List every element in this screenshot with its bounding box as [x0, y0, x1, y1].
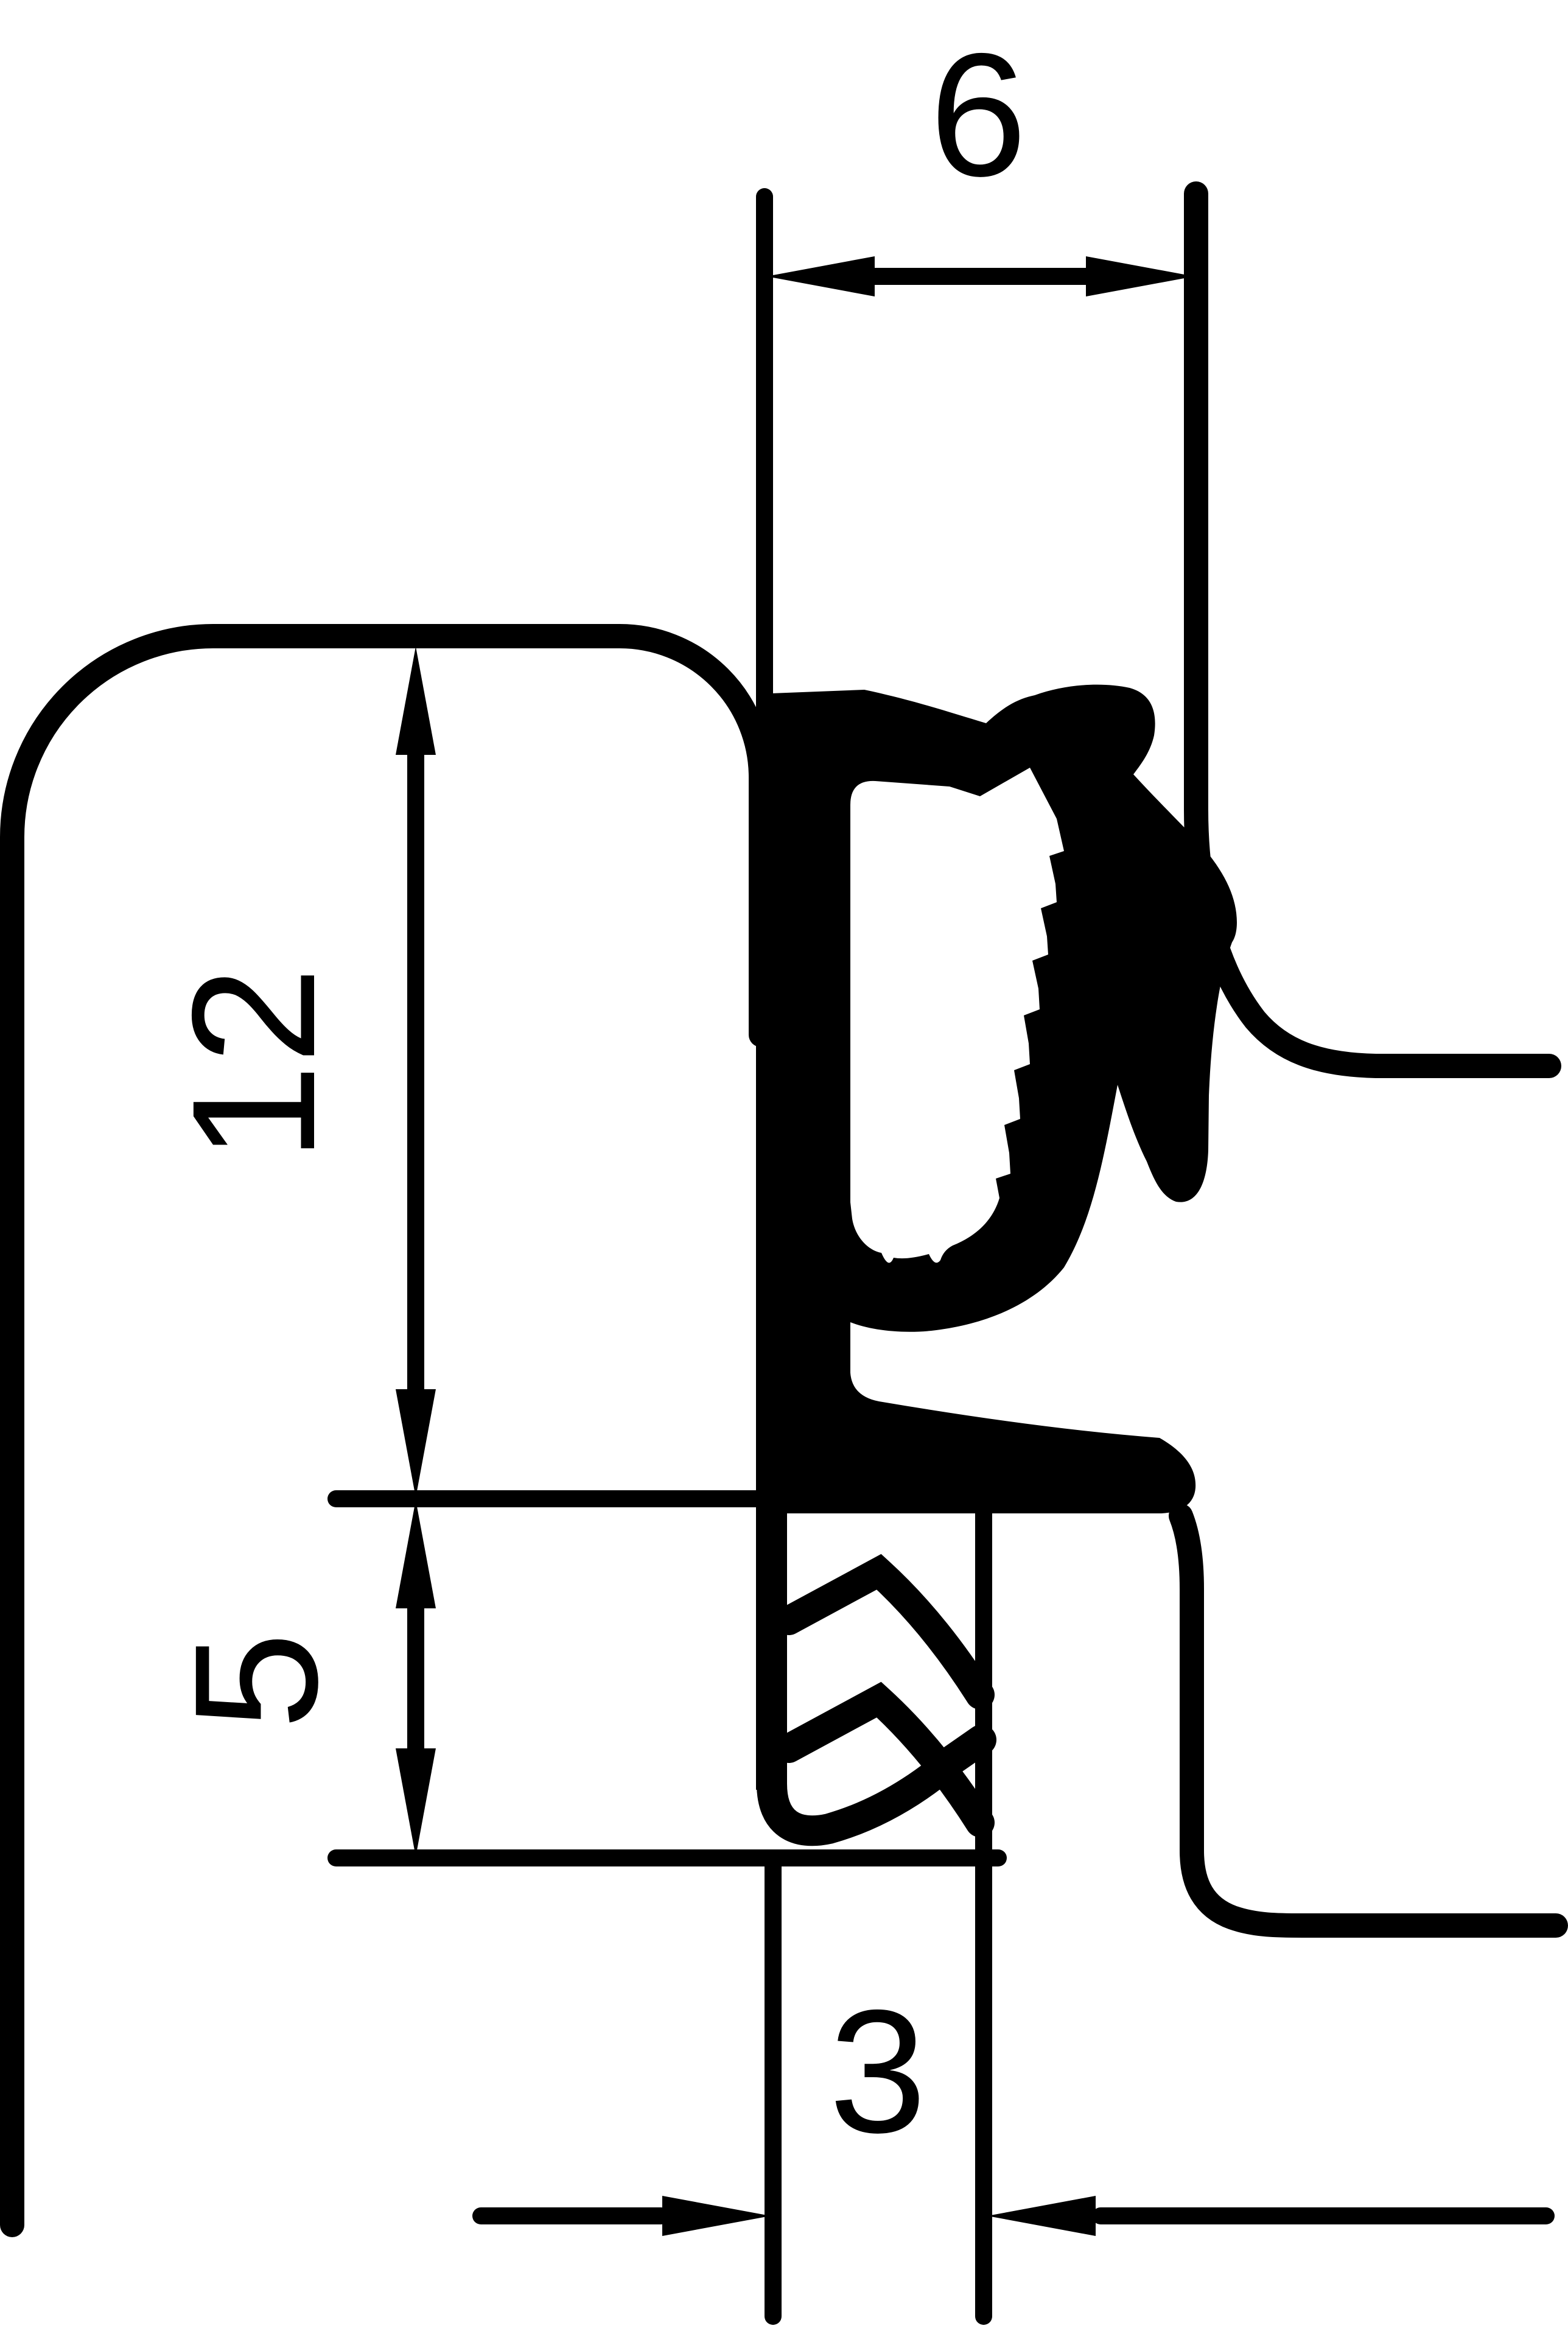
svg-text:3: 3 — [829, 1974, 926, 2170]
svg-text:5: 5 — [158, 1632, 354, 1729]
svg-text:12: 12 — [156, 967, 352, 1162]
svg-text:6: 6 — [929, 17, 1027, 213]
